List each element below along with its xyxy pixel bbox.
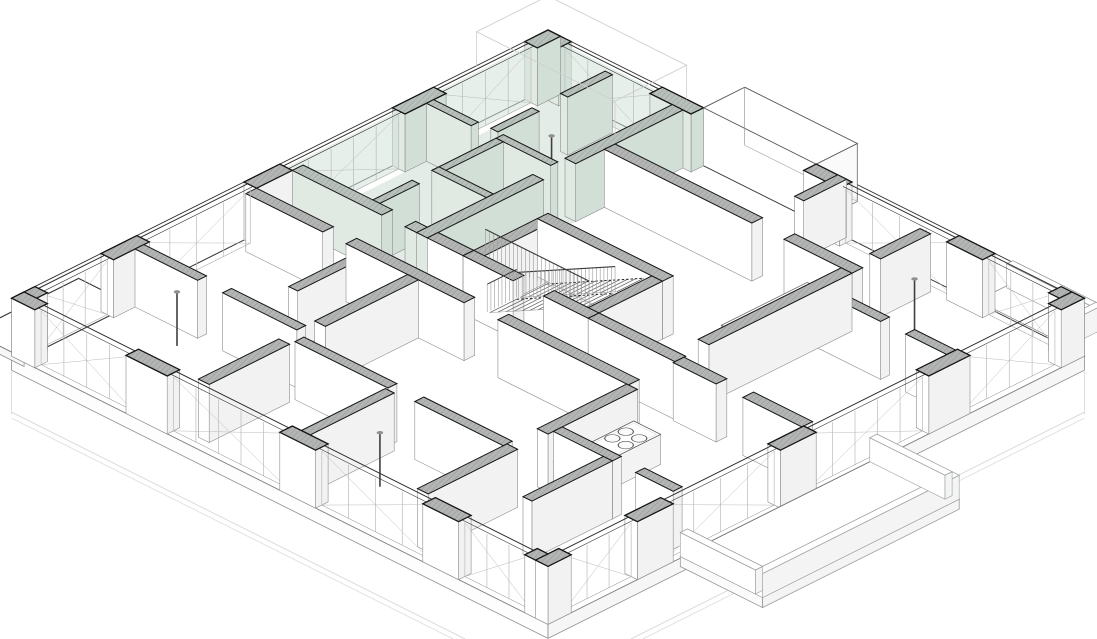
exterior-pier [1049,292,1085,368]
exterior-pier [536,549,572,625]
scene-root [0,0,1097,639]
cutaway-floor-plan-drawing [0,0,1097,639]
axonometric-floor-plan-view [0,0,1097,639]
exterior-pier [12,292,48,368]
